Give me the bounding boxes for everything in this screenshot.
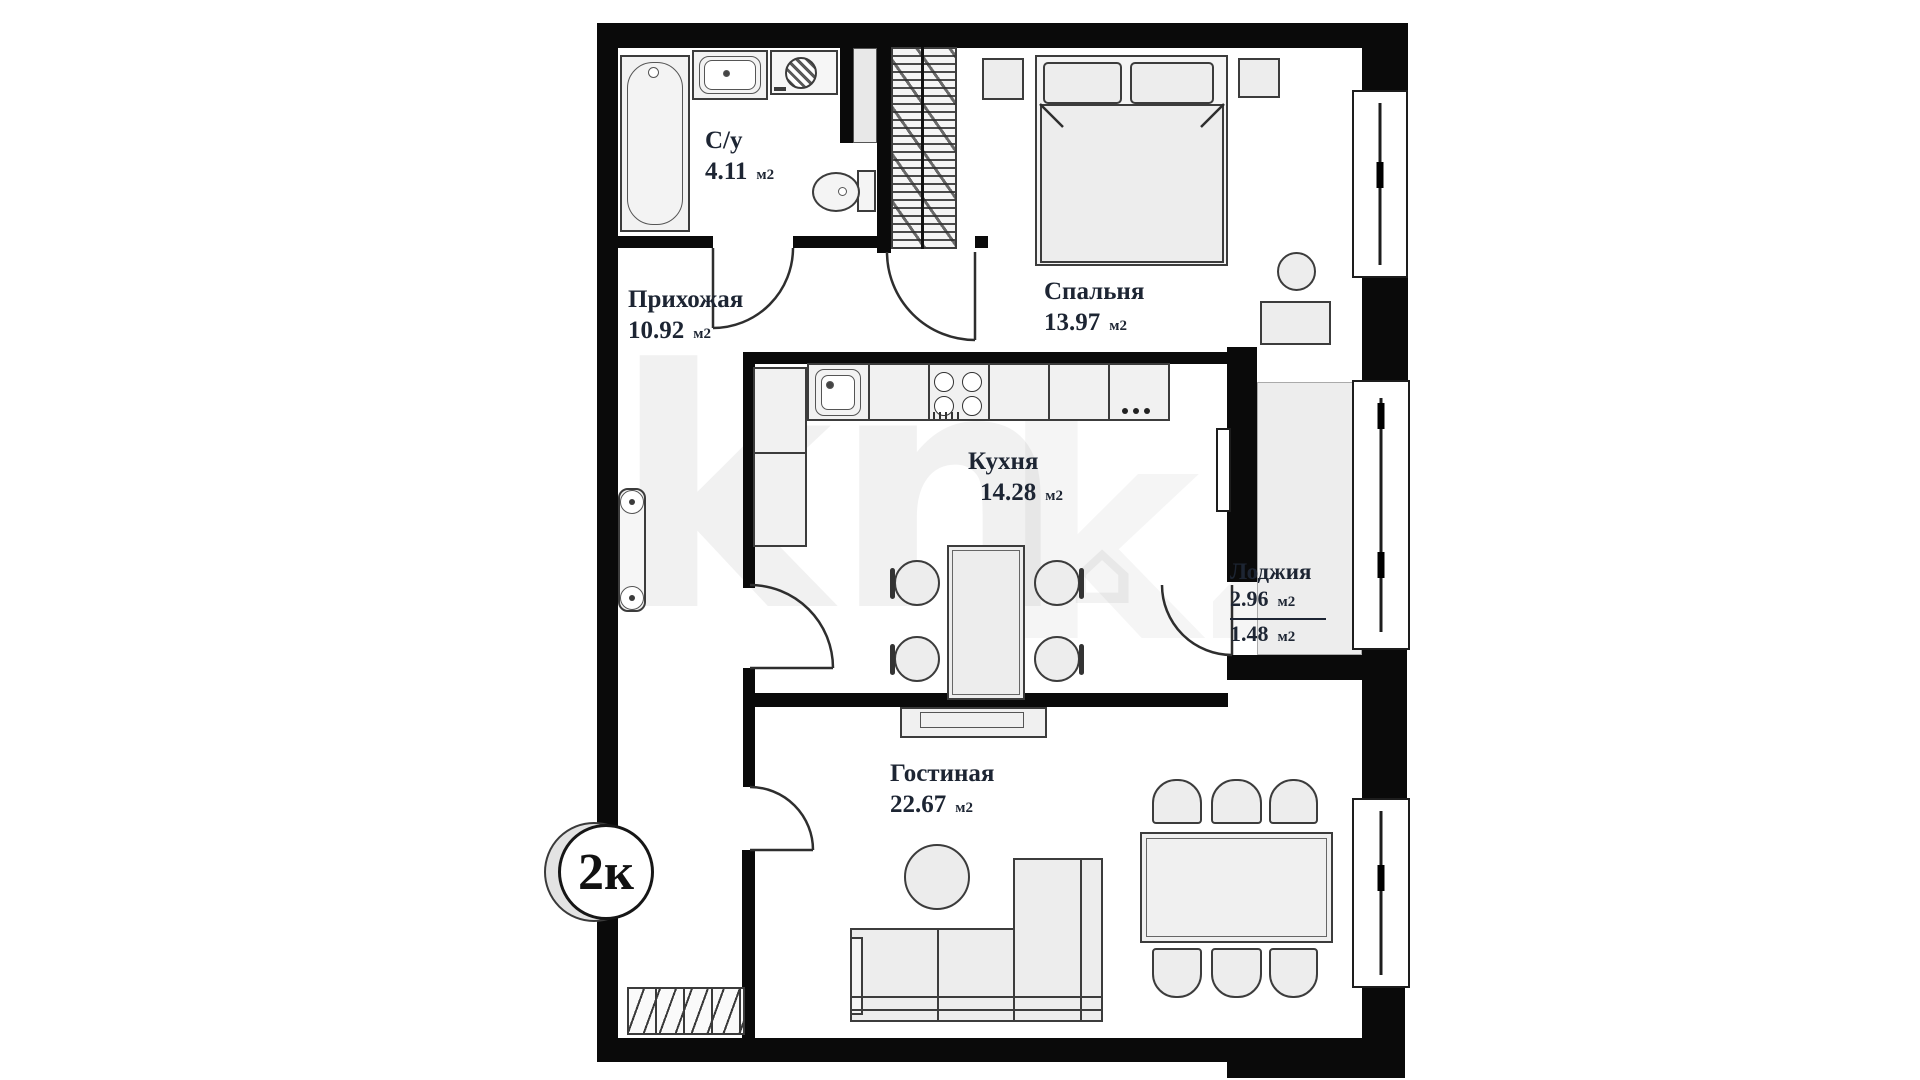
bathroom-label: С/у 4.11м2 xyxy=(705,125,774,191)
living-room-door-arc xyxy=(750,787,813,850)
kitchen-label: Кухня 14.28м2 xyxy=(968,446,1063,512)
living-room-label: Гостиная 22.67м2 xyxy=(890,758,994,824)
apartment-type-badge: 2к xyxy=(558,824,654,920)
bathroom-name: С/у xyxy=(705,125,774,156)
loggia-area-reduced: 1.48 xyxy=(1230,621,1269,646)
hallway-label: Прихожая 10.92м2 xyxy=(628,284,743,350)
loggia-unit: м2 xyxy=(1278,594,1296,610)
bedroom-label: Спальня 13.97м2 xyxy=(1044,276,1144,342)
hallway-name: Прихожая xyxy=(628,284,743,315)
living-room-unit: м2 xyxy=(955,800,973,816)
bedroom-name: Спальня xyxy=(1044,276,1144,307)
loggia-unit-reduced: м2 xyxy=(1278,629,1296,645)
bed-fold-left xyxy=(1040,104,1063,127)
loggia-door-arc xyxy=(1162,585,1232,655)
living-room-name: Гостиная xyxy=(890,758,994,789)
bathroom-unit: м2 xyxy=(756,167,774,183)
loggia-name: Лоджия xyxy=(1230,558,1326,585)
door-arcs-layer xyxy=(0,0,1920,1080)
living-room-area: 22.67 xyxy=(890,791,946,818)
floor-plan: kn kz ⌂ xyxy=(0,0,1920,1080)
hallway-area: 10.92 xyxy=(628,317,684,344)
loggia-area: 2.96 xyxy=(1230,586,1269,611)
loggia-label: Лоджия 2.96м2 1.48м2 xyxy=(1230,558,1326,651)
bedroom-unit: м2 xyxy=(1109,318,1127,334)
kitchen-door-arc xyxy=(750,585,833,668)
bathroom-area: 4.11 xyxy=(705,158,747,185)
bedroom-area: 13.97 xyxy=(1044,309,1100,336)
kitchen-unit: м2 xyxy=(1045,488,1063,504)
bed-fold-right xyxy=(1201,104,1224,127)
kitchen-area: 14.28 xyxy=(980,479,1036,506)
bedroom-door-arc xyxy=(887,252,975,340)
kitchen-name: Кухня xyxy=(968,446,1063,477)
hallway-unit: м2 xyxy=(693,326,711,342)
